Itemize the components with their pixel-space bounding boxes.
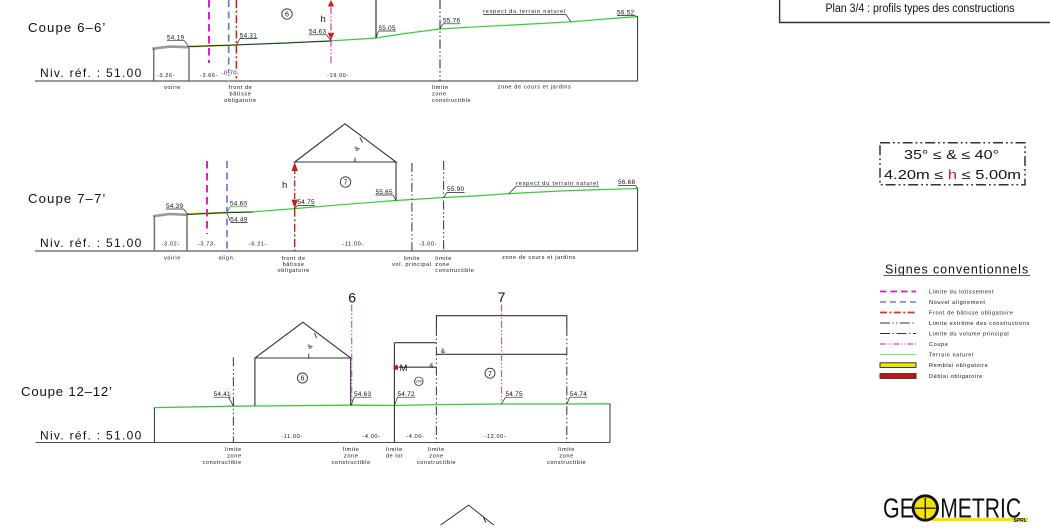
svg-text:-12.00-: -12.00- xyxy=(484,434,506,440)
svg-text:-4.00-: -4.00- xyxy=(362,434,380,440)
svg-text:Terrain naturel: Terrain naturel xyxy=(929,353,974,359)
svg-text:voirie: voirie xyxy=(164,85,181,91)
svg-text:M: M xyxy=(400,363,408,373)
svg-text:7: 7 xyxy=(344,180,348,187)
svg-text:obligatoire: obligatoire xyxy=(277,268,309,274)
svg-text:&: & xyxy=(441,348,446,355)
svg-text:h: h xyxy=(321,14,326,25)
svg-text:GE: GE xyxy=(883,493,914,524)
svg-text:Limite du volume principal: Limite du volume principal xyxy=(929,332,1009,338)
svg-text:constructible: constructible xyxy=(435,268,474,274)
svg-text:constructible: constructible xyxy=(202,460,241,466)
svg-text:6: 6 xyxy=(301,376,305,383)
svg-text:-3.26-: -3.26- xyxy=(157,73,175,79)
svg-text:constructible: constructible xyxy=(332,460,371,466)
svg-text:Niv. réf. : 51.00: Niv. réf. : 51.00 xyxy=(40,236,143,250)
svg-text:zone de cours et jardins: zone de cours et jardins xyxy=(498,84,572,90)
svg-text:de lot: de lot xyxy=(386,454,403,460)
svg-text:h: h xyxy=(282,180,287,191)
svg-text:Plan 3/4 : profils types des c: Plan 3/4 : profils types des constructio… xyxy=(826,3,1015,15)
svg-text:-0.70-: -0.70- xyxy=(221,71,239,77)
svg-text:SPRL: SPRL xyxy=(1014,518,1027,524)
svg-text:constructible: constructible xyxy=(417,460,456,466)
svg-text:Coupe 12–12’: Coupe 12–12’ xyxy=(21,384,113,399)
svg-text:limite: limite xyxy=(428,447,445,453)
svg-text:zone: zone xyxy=(344,454,359,460)
svg-text:7: 7 xyxy=(488,371,492,378)
svg-text:align.: align. xyxy=(219,256,236,262)
svg-text:limite: limite xyxy=(343,447,360,453)
svg-text:Nouvel alignement: Nouvel alignement xyxy=(929,300,986,306)
svg-text:front de: front de xyxy=(229,85,253,91)
svg-text:-4.00-: -4.00- xyxy=(406,434,424,440)
svg-text:-3.02-: -3.02- xyxy=(162,241,180,247)
svg-text:Coupe 6–6’: Coupe 6–6’ xyxy=(28,20,106,35)
svg-text:voirie: voirie xyxy=(164,256,181,262)
svg-text:Déblai obligatoire: Déblai obligatoire xyxy=(929,374,983,380)
svg-text:7: 7 xyxy=(498,289,506,305)
svg-text:&: & xyxy=(429,363,434,370)
svg-text:bâtisse: bâtisse xyxy=(230,92,252,98)
svg-text:limite: limite xyxy=(386,447,403,453)
svg-text:VSO: VSO xyxy=(415,380,423,384)
svg-text:Niv. réf. : 51.00: Niv. réf. : 51.00 xyxy=(40,428,143,442)
svg-text:Limite du lotissement: Limite du lotissement xyxy=(929,290,994,296)
svg-text:Signes conventionnels: Signes conventionnels xyxy=(885,263,1029,277)
svg-text:limite: limite xyxy=(225,447,242,453)
svg-text:-3.73-: -3.73- xyxy=(198,241,216,247)
svg-text:4.20m ≤ h ≤ 5.00m: 4.20m ≤ h ≤ 5.00m xyxy=(884,168,1021,182)
svg-text:zone: zone xyxy=(429,454,444,460)
svg-text:6: 6 xyxy=(285,12,289,19)
svg-text:zone de cours et jardins: zone de cours et jardins xyxy=(502,255,576,261)
svg-text:zone: zone xyxy=(227,454,242,460)
svg-text:-6.21-: -6.21- xyxy=(249,241,267,247)
svg-text:Remblai obligatoire: Remblai obligatoire xyxy=(929,363,988,369)
svg-text:-11.00-: -11.00- xyxy=(281,434,303,440)
svg-text:&: & xyxy=(306,342,315,350)
svg-text:-19.00-: -19.00- xyxy=(327,73,349,79)
svg-text:constructible: constructible xyxy=(432,98,471,104)
svg-text:constructible: constructible xyxy=(547,460,586,466)
svg-text:Front de bâtisse obligatoir: Front de bâtisse obligatoire xyxy=(929,311,1013,317)
svg-text:6: 6 xyxy=(348,289,356,305)
svg-text:limite: limite xyxy=(558,447,575,453)
svg-text:zone: zone xyxy=(559,454,574,460)
svg-text:-3.66-: -3.66- xyxy=(200,73,218,79)
svg-text:35° ≤ & ≤ 40°: 35° ≤ & ≤ 40° xyxy=(904,148,999,162)
svg-text:-3.00-: -3.00- xyxy=(419,241,437,247)
svg-text:obligatoire: obligatoire xyxy=(224,98,256,104)
svg-text:&: & xyxy=(353,144,362,152)
svg-text:limite: limite xyxy=(432,85,449,91)
svg-text:Limite extrême des construc: Limite extrême des constructions xyxy=(929,321,1030,327)
svg-text:Coupe: Coupe xyxy=(929,342,948,348)
svg-text:vol. principal: vol. principal xyxy=(392,262,432,268)
svg-text:Coupe 7–7’: Coupe 7–7’ xyxy=(28,191,106,206)
svg-text:zone: zone xyxy=(432,92,447,98)
svg-text:Niv. réf. : 51.00: Niv. réf. : 51.00 xyxy=(40,66,143,80)
svg-text:-11.00-: -11.00- xyxy=(342,241,364,247)
